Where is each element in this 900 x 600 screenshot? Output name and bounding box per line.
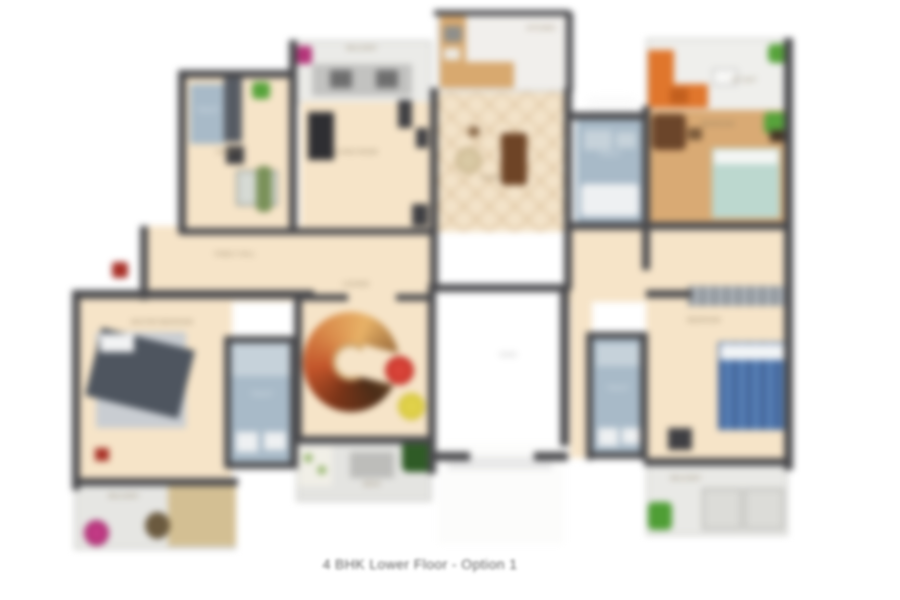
wall [428,284,570,292]
room-label: Toilet [188,108,228,115]
room-label: Void [488,352,528,359]
room-label: Living Room [328,150,384,157]
wall [564,230,572,290]
wall [564,88,572,234]
wall [586,332,593,460]
toilet-seat [236,432,258,452]
bed-pillows [714,150,778,164]
round-table [145,512,170,539]
stove [444,26,462,42]
bed-pillows [720,344,786,360]
vanity [584,130,612,150]
wall [178,70,296,78]
wall [430,230,438,292]
wall [296,294,348,301]
wall [784,38,793,272]
floor-plan: Toilet Dining Balcony Living Room Foyer … [0,0,900,600]
wall [140,226,148,300]
flower-bed [298,446,332,486]
sink [444,48,460,60]
room-label: Dining [198,150,258,157]
room-label: Toilet [232,392,292,399]
armchair [652,114,686,150]
wall [289,40,297,234]
room-label: Toilet [580,152,640,159]
wall [428,452,470,461]
planter-magenta [296,46,312,64]
wardrobe [688,286,784,306]
wall [226,462,298,469]
wall [534,452,568,461]
sink [622,428,640,444]
stool [468,126,480,137]
bathtub [581,184,639,216]
room-label: Balcony [664,476,708,483]
room-label: Foyer [470,176,514,183]
bed-pillows [100,334,134,352]
room-label: Kitchen [518,26,564,33]
door-leaf [412,204,428,228]
sink [264,432,286,450]
wall [434,10,570,16]
door-pill [586,96,638,112]
room-label: Deck [350,482,394,489]
wall [72,478,238,486]
wall [178,70,186,234]
plan-caption: 4 BHK Lower Floor - Option 1 [0,556,870,572]
bench [350,452,394,478]
balcony-chair [330,70,352,88]
toilet-seat [598,428,618,446]
wall [560,288,569,446]
cushion-red [95,448,109,461]
room-label: Bedroom [676,318,732,325]
wall [784,270,793,470]
plant-icon [648,502,672,530]
planter-magenta [84,520,109,546]
plant-pot [770,130,784,142]
room-label: Family Hall [202,252,268,259]
room-label: Bedroom [690,122,746,129]
wall [640,332,648,460]
plant-icon [252,82,270,99]
wall [294,436,436,444]
wall [564,222,792,230]
wash-basin-red [112,262,128,278]
wall [644,458,792,466]
lounger [702,488,742,530]
lounger [744,488,784,530]
toilet-seat [616,132,636,148]
kitchen-counter [440,62,514,88]
wall [224,336,231,468]
room-label: Sit Out [718,78,770,85]
door-leaf [398,100,412,128]
wall [646,290,692,298]
wall [72,290,314,299]
wall [572,112,650,120]
room-label: Balcony [102,494,146,501]
stool-yellow [398,393,425,420]
side-table [688,128,702,140]
wall [642,106,650,270]
shower-tray [232,344,292,376]
wall [180,228,438,235]
wall [588,452,646,459]
door-leaf [416,128,428,148]
floor-plan-image: Toilet Dining Balcony Living Room Foyer … [0,0,900,600]
round-table-red [385,356,414,385]
wall [588,332,646,339]
balcony-chair [376,70,398,88]
room-label: Lounge [330,282,382,289]
room-label: Balcony [330,46,394,53]
shower-tray [596,344,640,366]
wall [294,296,302,444]
side-table [668,428,692,450]
sofa-cushion [670,88,688,104]
wall [428,288,436,474]
round-rug [455,147,482,174]
room-void [438,290,564,442]
woven-mat [168,486,236,546]
wall [72,290,80,490]
wall [566,12,573,92]
wall [224,336,298,343]
wall [430,88,438,234]
room-label: Toilet [594,386,642,393]
plant-icon [256,166,272,212]
room-label: Master Bedroom [116,320,208,327]
